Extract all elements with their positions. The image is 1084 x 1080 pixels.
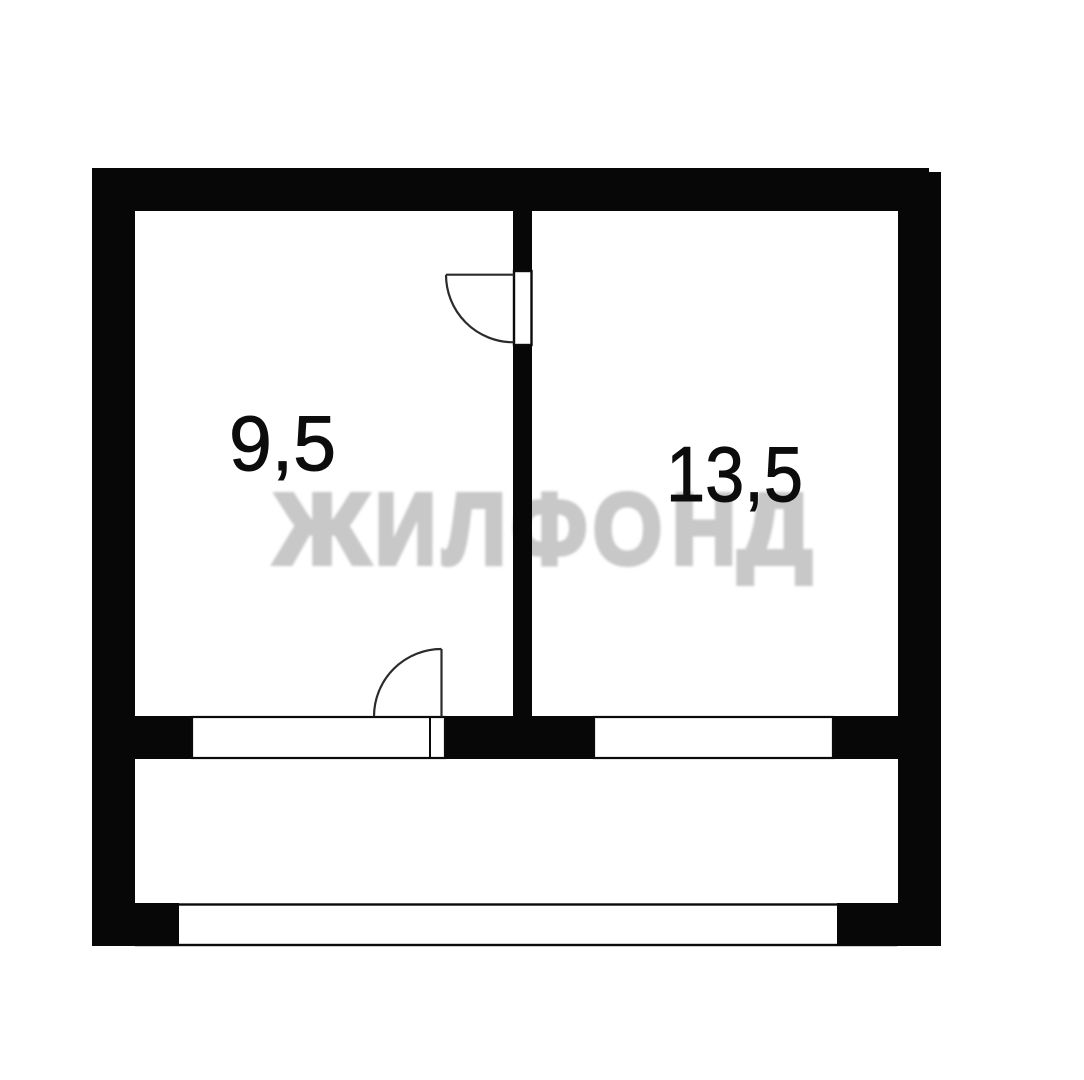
svg-text:О: О: [593, 474, 662, 586]
svg-text:9,5: 9,5: [229, 399, 336, 487]
svg-text:Ж: Ж: [274, 474, 370, 586]
svg-text:Л: Л: [443, 474, 506, 586]
svg-text:13,5: 13,5: [666, 430, 803, 518]
svg-text:И: И: [375, 474, 436, 586]
